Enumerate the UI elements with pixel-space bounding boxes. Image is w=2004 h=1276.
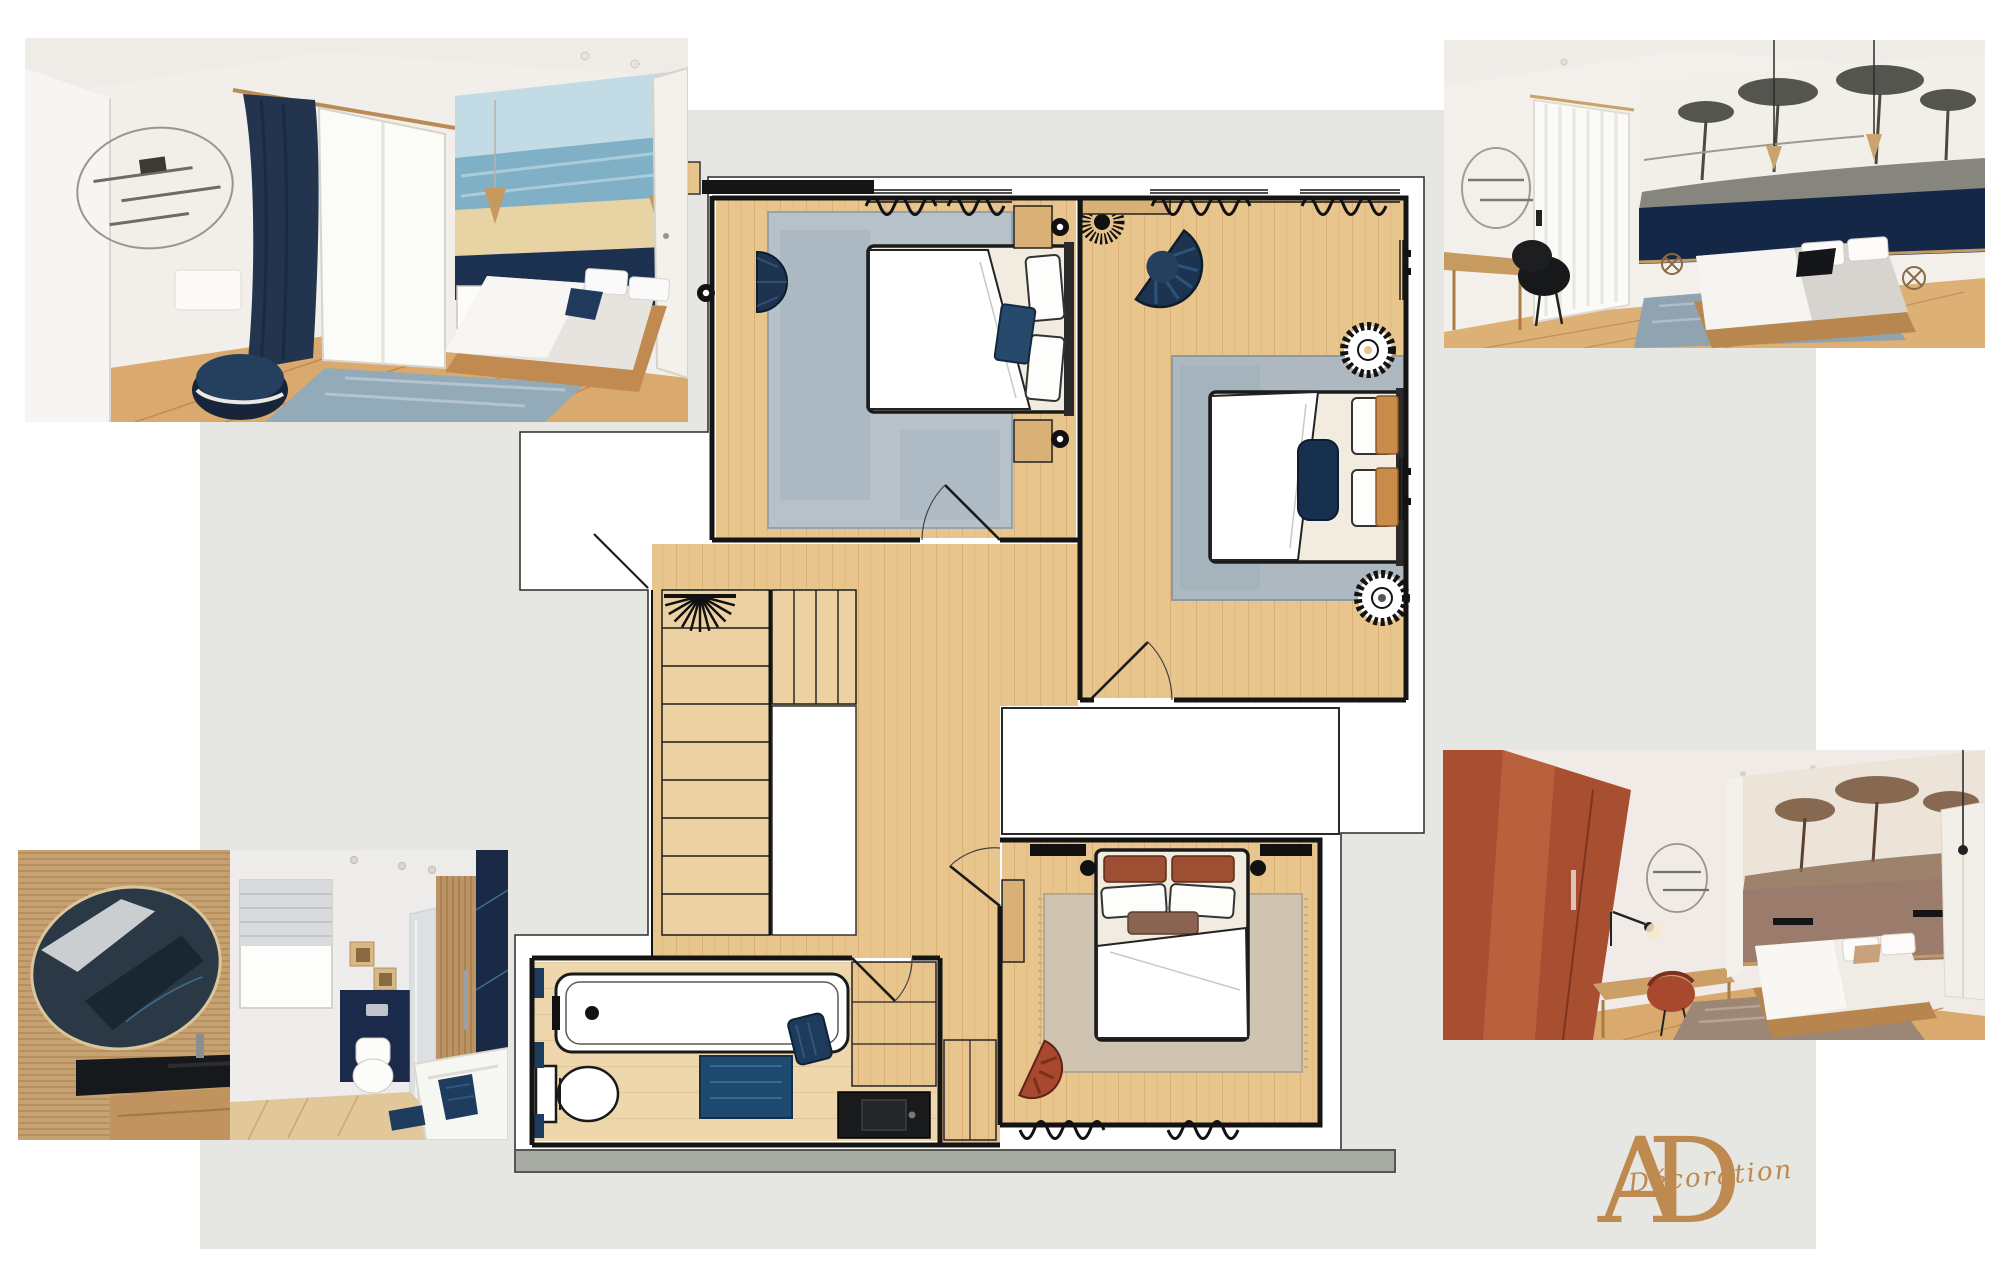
nightstand <box>1014 206 1052 248</box>
bed-bedroom1 <box>868 242 1074 416</box>
staircase <box>662 590 856 935</box>
bed-bedroom3 <box>1096 850 1248 1040</box>
render-bathroom <box>18 850 508 1140</box>
toilet-area <box>340 990 410 1093</box>
navy-curtain <box>243 94 319 370</box>
desk-bedroom3 <box>1002 880 1024 962</box>
design-presentation-board: AD Décoration <box>0 0 2004 1276</box>
left-wall <box>25 68 110 422</box>
nightstand <box>1014 420 1052 462</box>
render-bedroom-savanna <box>1444 40 1985 348</box>
storage-cabinet <box>852 962 936 1086</box>
window-roman-blind <box>240 880 332 1008</box>
brand-logo: AD Décoration <box>1598 1122 1818 1244</box>
stairwell-void <box>772 706 856 935</box>
bed-bedroom2 <box>1210 388 1404 566</box>
render-bedroom-terracotta <box>1443 750 1985 1040</box>
bed <box>1694 237 1916 348</box>
savanna-mural <box>1639 54 1985 210</box>
terrace-void <box>1002 708 1339 834</box>
section-band <box>515 1150 1395 1172</box>
vanity-sink <box>838 1092 930 1138</box>
navy-pouf <box>192 354 288 420</box>
render-bedroom-seaside <box>25 38 688 422</box>
winder-steps <box>772 590 856 704</box>
toilet <box>536 1066 618 1122</box>
wardrobe-bedroom3 <box>944 1040 996 1140</box>
